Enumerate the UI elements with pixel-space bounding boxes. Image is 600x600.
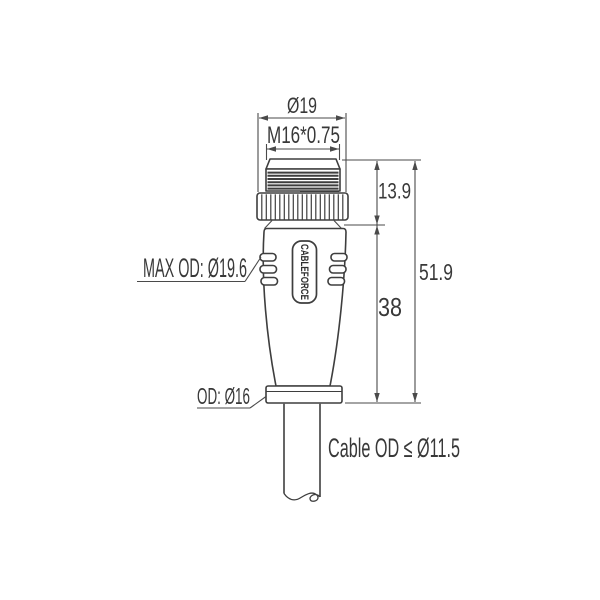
- cable-break-line: [284, 493, 320, 501]
- grip-rib: [260, 266, 277, 274]
- grip-rib: [330, 266, 347, 274]
- dim-text-body-height: 38: [378, 292, 402, 322]
- arrowhead: [374, 393, 379, 402]
- shoulder-line-left: [265, 221, 273, 229]
- grip-rib: [328, 278, 345, 286]
- arrowhead: [374, 161, 379, 170]
- dim-text-total-length: 51.9: [419, 259, 453, 285]
- thread-top-step: [266, 159, 340, 169]
- grip-rib: [261, 278, 278, 286]
- arrowhead: [336, 115, 345, 120]
- arrowhead: [374, 216, 379, 225]
- cable-collar: [266, 386, 342, 403]
- technical-drawing-page: CABLEFORCE: [0, 0, 600, 600]
- grip-rib: [331, 254, 347, 262]
- arrowhead: [259, 115, 268, 120]
- connector-dimension-drawing: CABLEFORCE: [0, 0, 600, 600]
- thread-hatch-lines: [268, 173, 340, 192]
- cable: [284, 404, 320, 501]
- dim-text-max-od: MAX OD: Ø19.6: [143, 253, 247, 283]
- dim-text-coupling-nut-height: 13.9: [378, 179, 411, 204]
- dim-text-collar-od: OD: Ø16: [197, 383, 250, 409]
- dim-text-thread-spec: M16*0.75: [267, 122, 340, 149]
- dim-text-cable-od: Cable OD ≤ Ø11.5: [328, 433, 460, 463]
- arrowhead: [374, 226, 379, 235]
- grip-rib: [260, 254, 276, 262]
- shoulder-line-right: [334, 221, 342, 229]
- dim-text-top-diameter: Ø19: [287, 93, 317, 118]
- brand-label: CABLEFORCE: [298, 244, 310, 300]
- arrowhead: [412, 161, 417, 170]
- leader-line-collar-od: [250, 397, 266, 409]
- leader-line-max-od: [245, 257, 261, 282]
- arrowhead: [412, 393, 417, 402]
